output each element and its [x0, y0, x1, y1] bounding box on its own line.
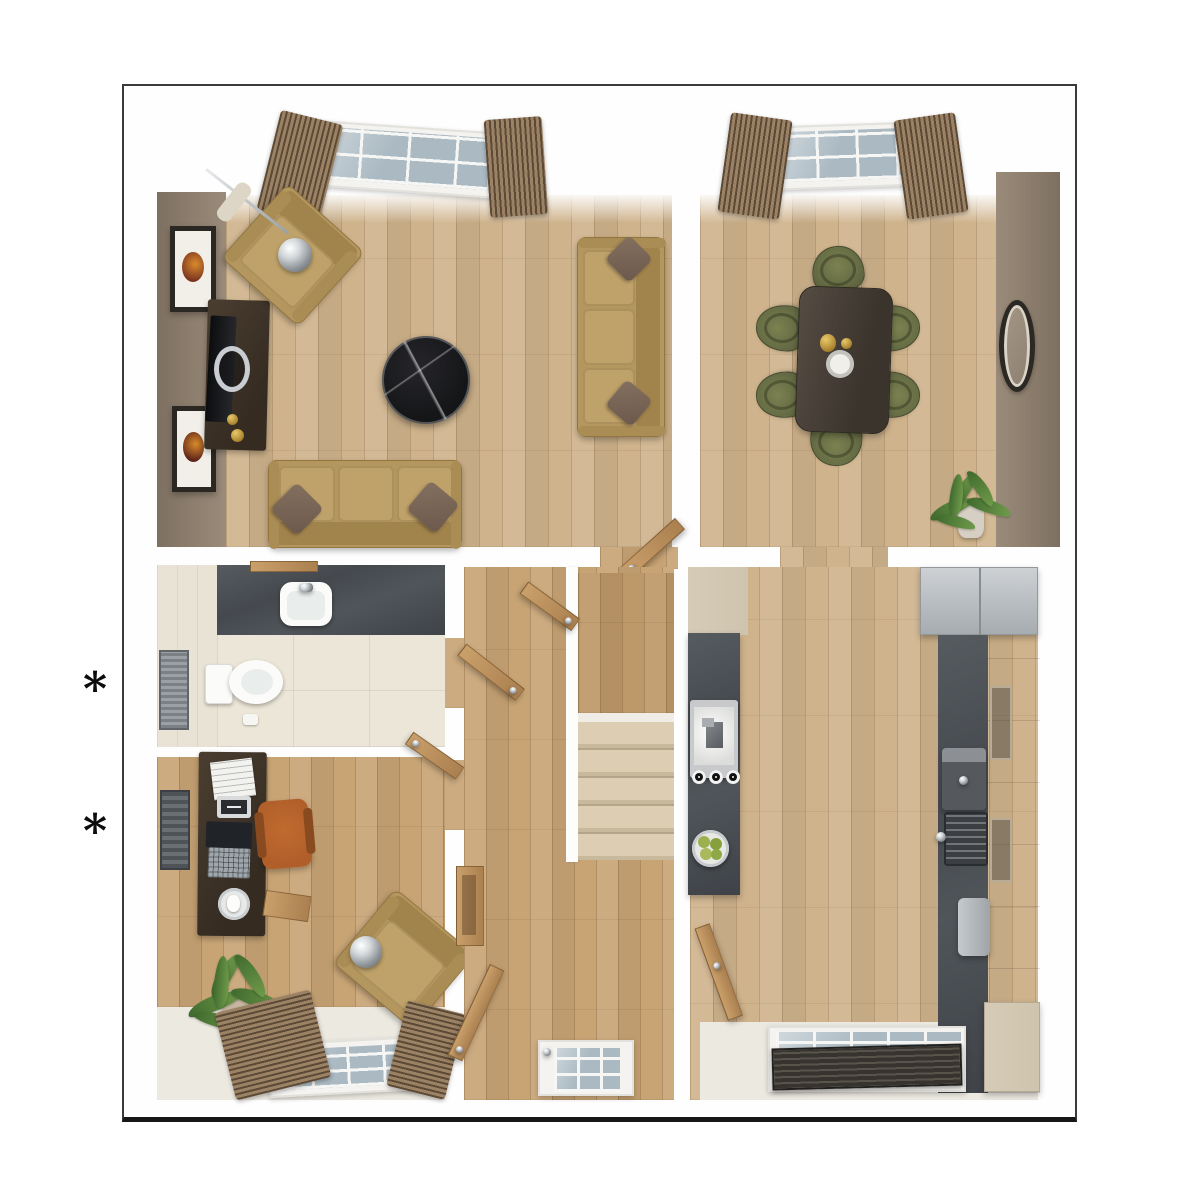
hob-knob — [709, 770, 723, 784]
staircase-steps — [578, 722, 674, 860]
tall-cabinet — [984, 1002, 1040, 1092]
wall-art-print-2 — [183, 432, 204, 462]
wc-tap — [299, 583, 313, 592]
front-door-handle — [543, 1048, 551, 1056]
floorplan-screenshot: { "annotations": { "markers": [ { "symbo… — [0, 0, 1200, 1200]
living-room-curtain-right — [484, 116, 549, 218]
candle-1 — [227, 414, 238, 425]
fridge-freezer — [920, 567, 1038, 635]
toilet-roll — [243, 714, 258, 725]
sink-tap — [936, 832, 946, 842]
coffee-machine — [942, 748, 986, 810]
wc-basin — [280, 582, 332, 626]
fruit-bowl — [692, 830, 729, 867]
toaster — [958, 898, 990, 956]
toilet-bowl — [229, 660, 283, 704]
wall-art-print-1 — [182, 252, 204, 282]
hob — [690, 700, 738, 778]
arc-lamp-ball — [278, 238, 312, 272]
cabinet-glass-panel — [990, 686, 1012, 760]
kitchen-sink — [944, 812, 988, 866]
candle-2 — [231, 429, 244, 442]
table-jar — [841, 338, 852, 349]
footnote-asterisk-1: * — [78, 666, 112, 710]
table-plate — [826, 350, 854, 378]
office-chair — [257, 798, 313, 870]
laptop-keyboard — [207, 847, 250, 878]
doorway-dining-kitchen — [780, 546, 888, 568]
hall-console-shelf — [456, 866, 484, 946]
kitchen-venetian-blind — [771, 1044, 962, 1091]
wc-shelf-board — [250, 561, 318, 572]
front-door — [538, 1040, 634, 1096]
island-base — [688, 567, 748, 635]
stair-nosing — [578, 713, 674, 722]
front-door-glazing — [554, 1048, 620, 1092]
coffee-table — [382, 336, 470, 424]
mouse — [227, 895, 240, 912]
wc-towel-radiator — [159, 650, 189, 730]
desk-tablet — [217, 796, 251, 818]
study-radiator — [160, 790, 190, 870]
stair-landing — [578, 573, 674, 713]
dining-room-window-glass — [775, 128, 915, 183]
dining-plant — [928, 472, 1012, 552]
study-floor-lamp — [350, 936, 382, 968]
cabinet-glass-panel — [990, 818, 1012, 882]
footnote-asterisk-2: * — [78, 808, 112, 852]
wall-mirror — [999, 300, 1035, 392]
speaker-ring — [214, 346, 250, 392]
hob-knob — [726, 770, 740, 784]
laptop-screen — [206, 821, 253, 849]
table-vase — [820, 334, 836, 352]
desk-papers — [210, 758, 256, 801]
hob-knob — [692, 770, 706, 784]
